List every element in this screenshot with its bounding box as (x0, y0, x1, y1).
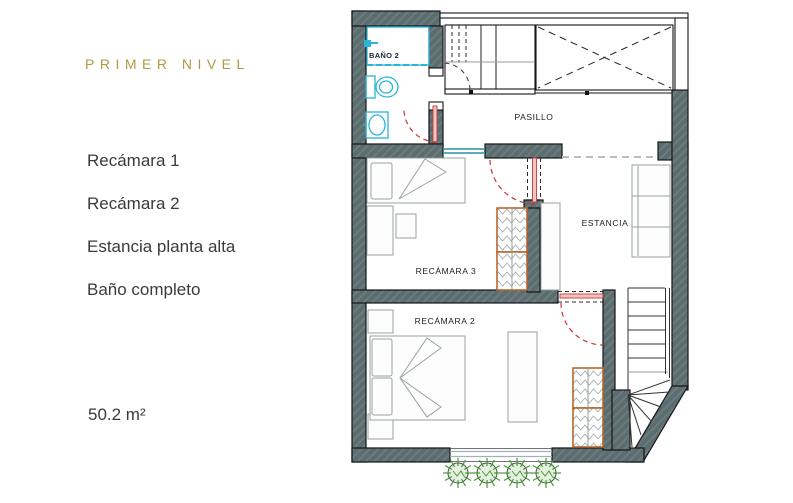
bedroom3: RECÁMARA 3 (367, 158, 541, 290)
door-leaf (533, 158, 537, 202)
plant-icon (502, 458, 532, 488)
interior-window (443, 149, 485, 153)
plant-icon (472, 458, 502, 488)
window (450, 449, 552, 462)
void-skylight (536, 25, 673, 90)
sofa (632, 165, 670, 257)
floor-plan: BAÑO 2 PASILLO (0, 0, 793, 503)
double-bed (370, 336, 465, 420)
bench (508, 332, 537, 422)
chair (393, 214, 416, 238)
bedroom2-label: RECÁMARA 2 (415, 316, 476, 326)
bedroom3-label: RECÁMARA 3 (416, 266, 477, 276)
living-label: ESTANCIA (582, 218, 629, 228)
desk (367, 206, 393, 255)
floorplan-page: PRIMER NIVEL Recámara 1 Recámara 2 Estan… (0, 0, 793, 503)
door-leaf (433, 106, 437, 142)
bedroom2: RECÁMARA 2 (368, 292, 603, 462)
living-area: ESTANCIA (541, 165, 670, 290)
closet (573, 368, 603, 447)
bathroom-label: BAÑO 2 (369, 51, 399, 60)
nightstand (368, 310, 393, 333)
hallway-label: PASILLO (514, 112, 553, 122)
closet (497, 208, 527, 290)
plants (443, 458, 561, 488)
bathroom: BAÑO 2 (363, 27, 437, 142)
door-swing (561, 303, 603, 345)
sink-icon (363, 112, 388, 138)
console-table (541, 203, 560, 290)
toilet-icon (366, 76, 398, 98)
shower-head-icon (364, 40, 378, 47)
single-bed (367, 158, 465, 203)
door-leaf (560, 294, 603, 298)
